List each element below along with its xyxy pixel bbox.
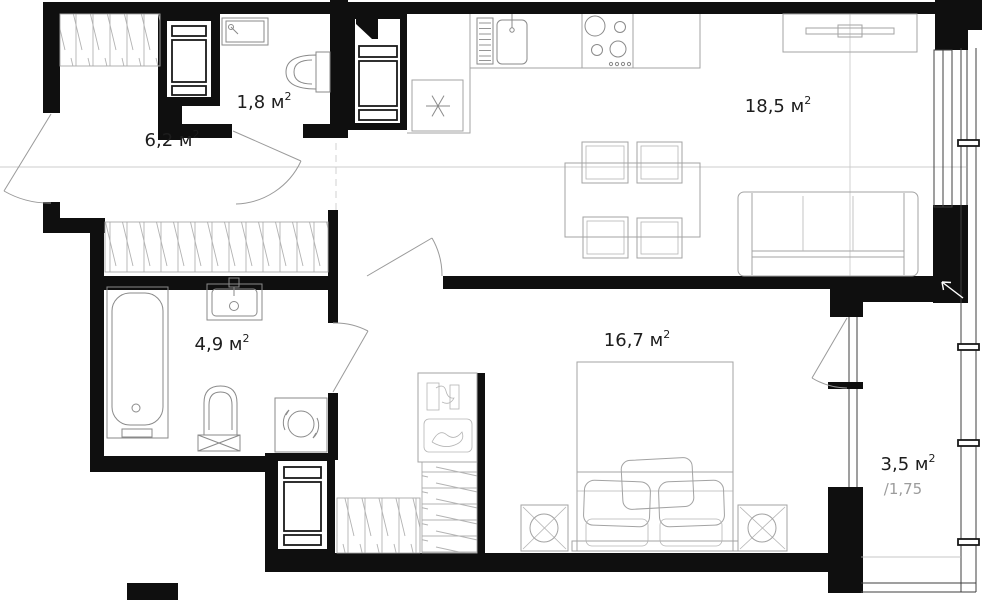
cooktop <box>585 16 631 66</box>
room-label-balcony: 3,5 м2 <box>881 452 936 475</box>
fridge-snowflake-icon <box>426 96 450 117</box>
room-label-wc: 1,8 м2 <box>237 90 292 113</box>
nightstand-right <box>738 505 787 551</box>
bathroom-door <box>333 323 368 392</box>
bedroom-closet <box>337 462 477 553</box>
fridge <box>412 80 463 131</box>
room-label-balcony-reduced: /1,75 <box>884 480 922 498</box>
vent-shaft-entry <box>167 21 211 97</box>
balcony-door-glazing <box>849 317 857 487</box>
room-label-entry-hall: 6,2 м2 <box>145 128 200 151</box>
dining-set <box>565 142 700 258</box>
room-label-bedroom: 16,7 м2 <box>604 328 670 351</box>
entry-door <box>4 114 51 203</box>
kitchen-sink <box>497 14 527 64</box>
entry-wardrobe <box>60 14 160 66</box>
bed <box>572 362 738 551</box>
dish-rack <box>477 18 493 64</box>
room-label-kitchen-living: 18,5 м2 <box>745 94 811 117</box>
sofa <box>738 192 918 276</box>
corridor-wardrobe <box>105 222 328 272</box>
facade-glazing <box>861 48 979 592</box>
vent-shaft-kitchen <box>355 19 400 123</box>
washing-machine <box>275 398 327 452</box>
wc-door <box>233 131 301 204</box>
bathtub <box>107 287 168 438</box>
bathroom-toilet <box>198 386 240 451</box>
nightstand-left <box>521 505 568 551</box>
floor-plan-canvas: 6,2 м2 1,8 м2 18,5 м2 4,9 м2 16,7 м2 3,5… <box>0 0 982 600</box>
dining-table <box>565 163 700 237</box>
bedroom-dresser <box>418 373 477 462</box>
accent-pillow <box>621 457 694 510</box>
bathroom-sink <box>207 278 262 320</box>
vent-shaft-bedroom <box>278 461 327 549</box>
wc-toilet <box>286 52 330 92</box>
wc-sink <box>222 18 268 45</box>
bedroom-door <box>367 238 442 276</box>
living-room-window <box>934 50 967 207</box>
floor-plan-drawing: 6,2 м2 1,8 м2 18,5 м2 4,9 м2 16,7 м2 3,5… <box>0 0 982 600</box>
kitchen-counter <box>407 14 700 133</box>
room-label-bathroom: 4,9 м2 <box>195 332 250 355</box>
bed-pillows <box>583 457 725 546</box>
balcony-door <box>812 318 847 388</box>
room-labels: 6,2 м2 1,8 м2 18,5 м2 4,9 м2 16,7 м2 3,5… <box>145 90 936 498</box>
